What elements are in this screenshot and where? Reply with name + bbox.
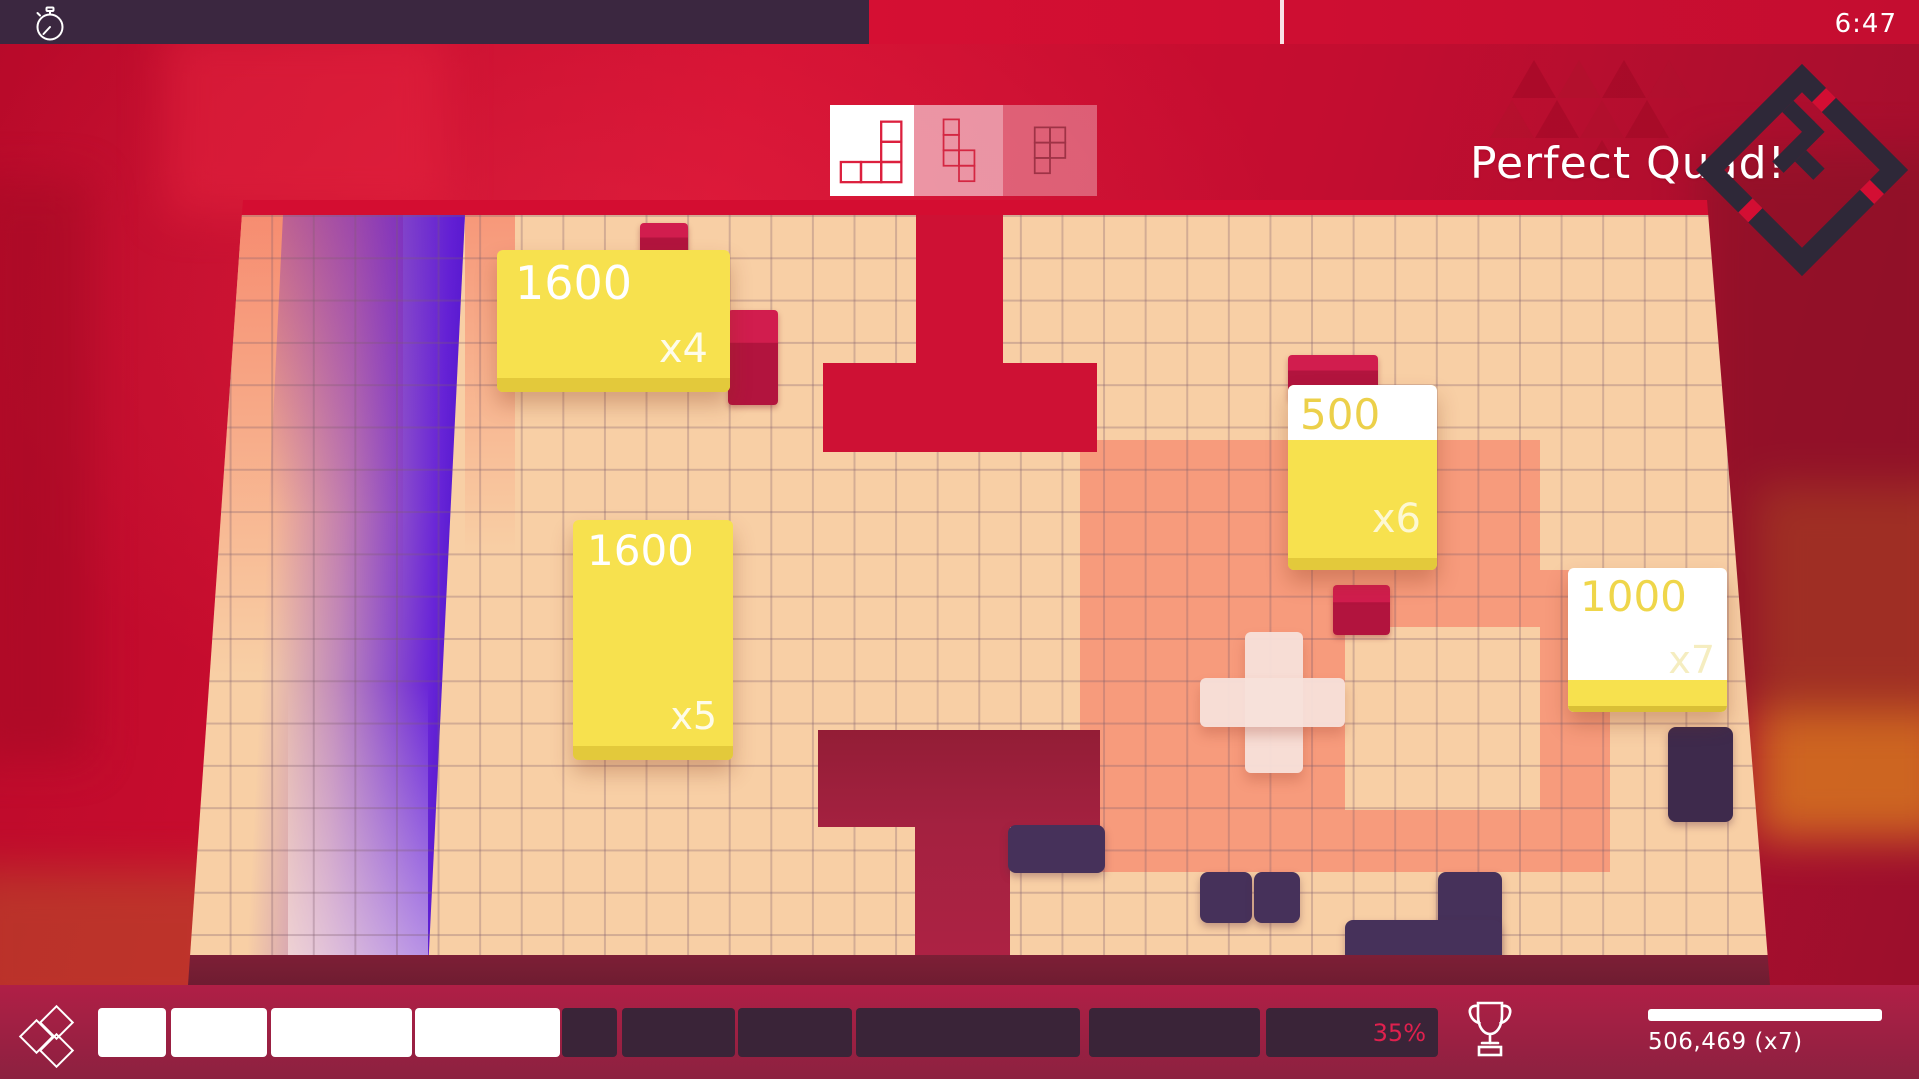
multiplier-segment-filled (98, 1008, 166, 1057)
board-bottom-rim (188, 955, 1770, 985)
tile-edge (1288, 558, 1437, 570)
score-popup: 500 x6 (1288, 385, 1437, 570)
board-hole-top-bar (823, 363, 1097, 452)
tile-yellow-strip (1568, 680, 1727, 706)
multiplier-segment-empty (738, 1008, 852, 1057)
top-strip (869, 0, 1919, 44)
popup-multiplier: x4 (659, 326, 708, 372)
score-popup: 1000 x7 (1568, 568, 1727, 712)
popup-score: 1600 (587, 526, 694, 575)
multiplier-segment-empty (622, 1008, 735, 1057)
n-pentomino-icon (942, 118, 976, 184)
piece-preview-slot-3 (1003, 105, 1097, 196)
l-pentomino-icon (839, 118, 905, 184)
popup-score: 500 (1300, 390, 1380, 439)
tile-edge (573, 746, 733, 760)
multiplier-progress-bar (0, 985, 1919, 1079)
multiplier-segment-empty (562, 1008, 617, 1057)
game-board[interactable] (188, 200, 1770, 985)
game-logo (1700, 68, 1864, 232)
placed-piece-domino (1008, 825, 1105, 873)
score-popup: 1600 x4 (497, 250, 730, 392)
bokeh-square (165, 30, 445, 215)
top-bar (0, 0, 869, 44)
placed-piece-square (1254, 872, 1300, 923)
multiplier-segment-empty (856, 1008, 1080, 1057)
popup-multiplier: x6 (1372, 496, 1421, 542)
timer-marker (1280, 0, 1284, 44)
multiplier-segment-filled (271, 1008, 412, 1057)
multiplier-segment-filled (171, 1008, 267, 1057)
board-hole-bottom-bar (818, 730, 1100, 827)
board-top-rim (188, 200, 1770, 215)
board-hole-bottom-stem (915, 825, 1010, 970)
trophy-icon (1466, 997, 1514, 1065)
score-progress-bar (1648, 1009, 1882, 1021)
stopwatch-icon (30, 3, 70, 43)
popup-multiplier: x5 (670, 694, 717, 738)
score-popup: 1600 x5 (573, 520, 733, 760)
board-field (188, 215, 1770, 955)
red-cube (728, 310, 778, 405)
popup-score: 1000 (1580, 572, 1687, 621)
board-hole-top-stem (916, 215, 1003, 365)
piece-preview-slot-1 (830, 105, 914, 196)
multiplier-segment-empty (1089, 1008, 1260, 1057)
bottom-hud-bar: 35% 506,469 (x7) (0, 985, 1919, 1079)
tile-edge (1568, 706, 1727, 712)
placed-piece-block (1668, 727, 1733, 822)
tile-edge (497, 378, 730, 392)
popup-score: 1600 (515, 256, 632, 310)
placed-piece-square (1200, 872, 1252, 923)
progress-percent-label: 35% (1266, 1019, 1426, 1047)
score-label: 506,469 (x7) (1648, 1029, 1803, 1055)
red-cube (1333, 585, 1390, 635)
plus-piece (1200, 678, 1345, 727)
popup-multiplier: x7 (1668, 638, 1715, 682)
p-pentomino-icon (1033, 126, 1067, 176)
timer-label: 6:47 (1835, 9, 1897, 39)
piece-preview-slot-2 (914, 105, 1003, 196)
multiplier-segment-filled (415, 1008, 560, 1057)
bokeh-square (0, 180, 90, 760)
game-screen: 1600 x4 1600 x5 500 x6 1000 x7 6:47 (0, 0, 1919, 1079)
